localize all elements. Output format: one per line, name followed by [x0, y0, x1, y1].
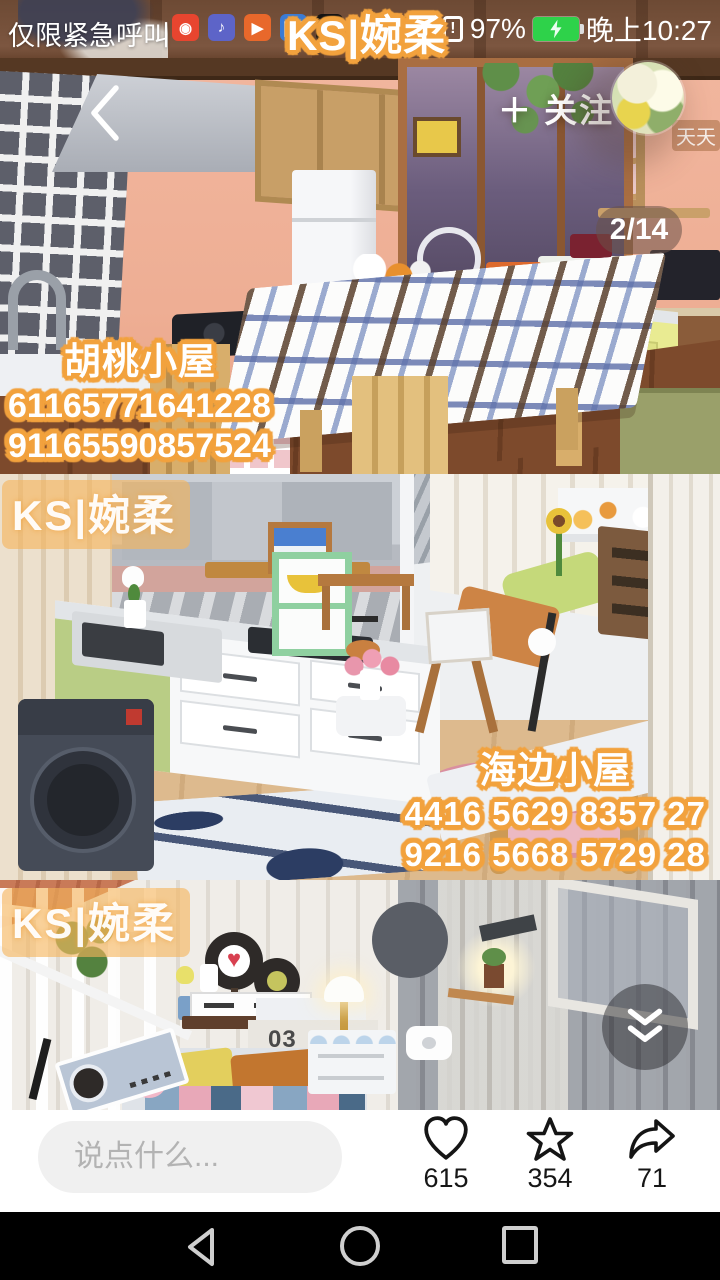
- favorite-count: 354: [527, 1163, 572, 1194]
- photo2-caption: 海边小屋 4416 5629 8357 27 9216 5668 5729 28: [405, 750, 706, 875]
- battery-percent: 97%: [470, 13, 526, 45]
- scene2-tulip-pot: [112, 566, 156, 628]
- nav-recents-button[interactable]: [502, 1226, 538, 1264]
- like-button[interactable]: 615: [406, 1116, 486, 1194]
- heart-icon: [422, 1116, 470, 1162]
- scene2-washing-machine: [18, 699, 154, 871]
- back-button[interactable]: [86, 82, 126, 144]
- scene3-paper-roll: [406, 1026, 452, 1060]
- double-chevron-down-icon: [622, 1007, 668, 1047]
- scene2-flower-stool: [336, 660, 412, 740]
- screen: 仅限紧急呼叫 ◉ ♪ ▶ ❚❚ ♪ KS|婉柔 ! 97% 晚上10:27: [0, 0, 720, 1280]
- nav-home-button[interactable]: [340, 1226, 380, 1266]
- share-arrow-icon: [627, 1116, 677, 1162]
- like-count: 615: [423, 1163, 468, 1194]
- photo1-caption: 胡桃小屋 61165771641228 91165590857524: [8, 342, 271, 466]
- photo3-watermark: KS|婉柔: [2, 888, 190, 957]
- status-bar: 仅限紧急呼叫 ◉ ♪ ▶ ❚❚ ♪ KS|婉柔 ! 97% 晚上10:27: [0, 0, 720, 58]
- bottom-action-bar: 615 354 71: [0, 1110, 720, 1212]
- scene3-small-plant: [484, 964, 504, 988]
- favorite-button[interactable]: 354: [510, 1116, 590, 1194]
- photo1-title: 胡桃小屋: [64, 342, 271, 382]
- comment-input[interactable]: [38, 1121, 342, 1193]
- scene1-chair: [352, 376, 448, 474]
- photo2-title: 海边小屋: [405, 750, 706, 791]
- scene1-faucet: [8, 270, 66, 350]
- video-camera-app-icon: ◉: [172, 14, 199, 41]
- scene3-mirror: [372, 902, 448, 978]
- statusbar-watermark: KS|婉柔: [287, 2, 446, 63]
- nav-back-button[interactable]: [182, 1226, 220, 1268]
- photo1-code-1: 61165771641228: [8, 386, 271, 426]
- page-indicator: 2/14: [596, 206, 682, 254]
- share-count: 71: [637, 1163, 667, 1194]
- post-photo-3[interactable]: ♥ 03: [0, 880, 720, 1110]
- scene3-nightstand: [308, 1030, 396, 1094]
- statusbar-right: ! 97% 晚上10:27: [402, 0, 712, 58]
- author-avatar[interactable]: [612, 62, 684, 134]
- scene3-table-lamp: [320, 976, 370, 1034]
- photo2-watermark: KS|婉柔: [2, 480, 190, 549]
- photo1-code-2: 91165590857524: [8, 426, 271, 466]
- scene2-wood-table: [318, 574, 414, 626]
- follow-button[interactable]: ＋ 关注: [498, 84, 614, 132]
- post-photo-1[interactable]: ＋ 关注 天天 2/14 胡桃小屋 61165771641228 9116559…: [0, 58, 720, 474]
- play-app-icon: ▶: [244, 14, 271, 41]
- share-button[interactable]: 71: [612, 1116, 692, 1194]
- scroll-down-button[interactable]: [602, 984, 688, 1070]
- scene1-lit-window: [413, 117, 461, 157]
- carrier-text: 仅限紧急呼叫: [8, 14, 170, 53]
- scene3-white-jar: [200, 964, 218, 992]
- photo2-code-2: 9216 5668 5729 28: [405, 834, 706, 875]
- photo2-code-1: 4416 5629 8357 27: [405, 793, 706, 834]
- music-note-app-icon: ♪: [208, 14, 235, 41]
- android-nav-bar: [0, 1212, 720, 1280]
- battery-icon: [533, 17, 579, 41]
- avatar-caption: 天天: [672, 120, 720, 151]
- scene2-sunflower: [540, 508, 580, 578]
- post-photo-2[interactable]: KS|婉柔 海边小屋 4416 5629 8357 27 9216 5668 5…: [0, 474, 720, 880]
- clock-time: 晚上10:27: [586, 9, 712, 49]
- star-icon: [526, 1116, 574, 1162]
- charging-bolt-icon: [546, 19, 566, 39]
